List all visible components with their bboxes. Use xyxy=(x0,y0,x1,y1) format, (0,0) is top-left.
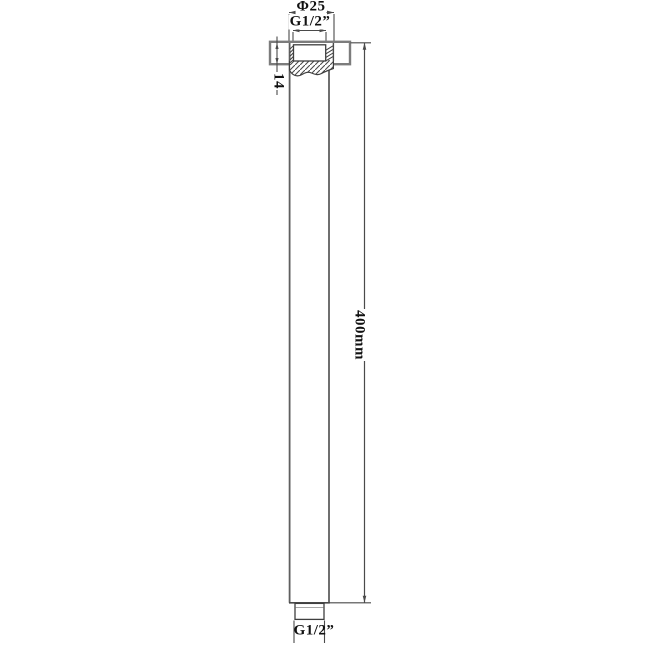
thread-bottom-label: G1/2” xyxy=(293,624,336,639)
diameter-top-label: Φ25 xyxy=(296,0,327,14)
arm-length-label: 400mm xyxy=(351,309,366,361)
arm-tube-outline xyxy=(290,43,329,603)
flange-height-label: 14 xyxy=(270,72,285,90)
thread-socket-hole xyxy=(294,45,326,61)
bottom-thread-nipple xyxy=(295,603,324,619)
drawing-canvas: Φ25 G1/2” 14 400mm G1/2” xyxy=(0,0,645,645)
technical-drawing-svg xyxy=(0,0,645,645)
thread-top-label: G1/2” xyxy=(289,15,332,30)
